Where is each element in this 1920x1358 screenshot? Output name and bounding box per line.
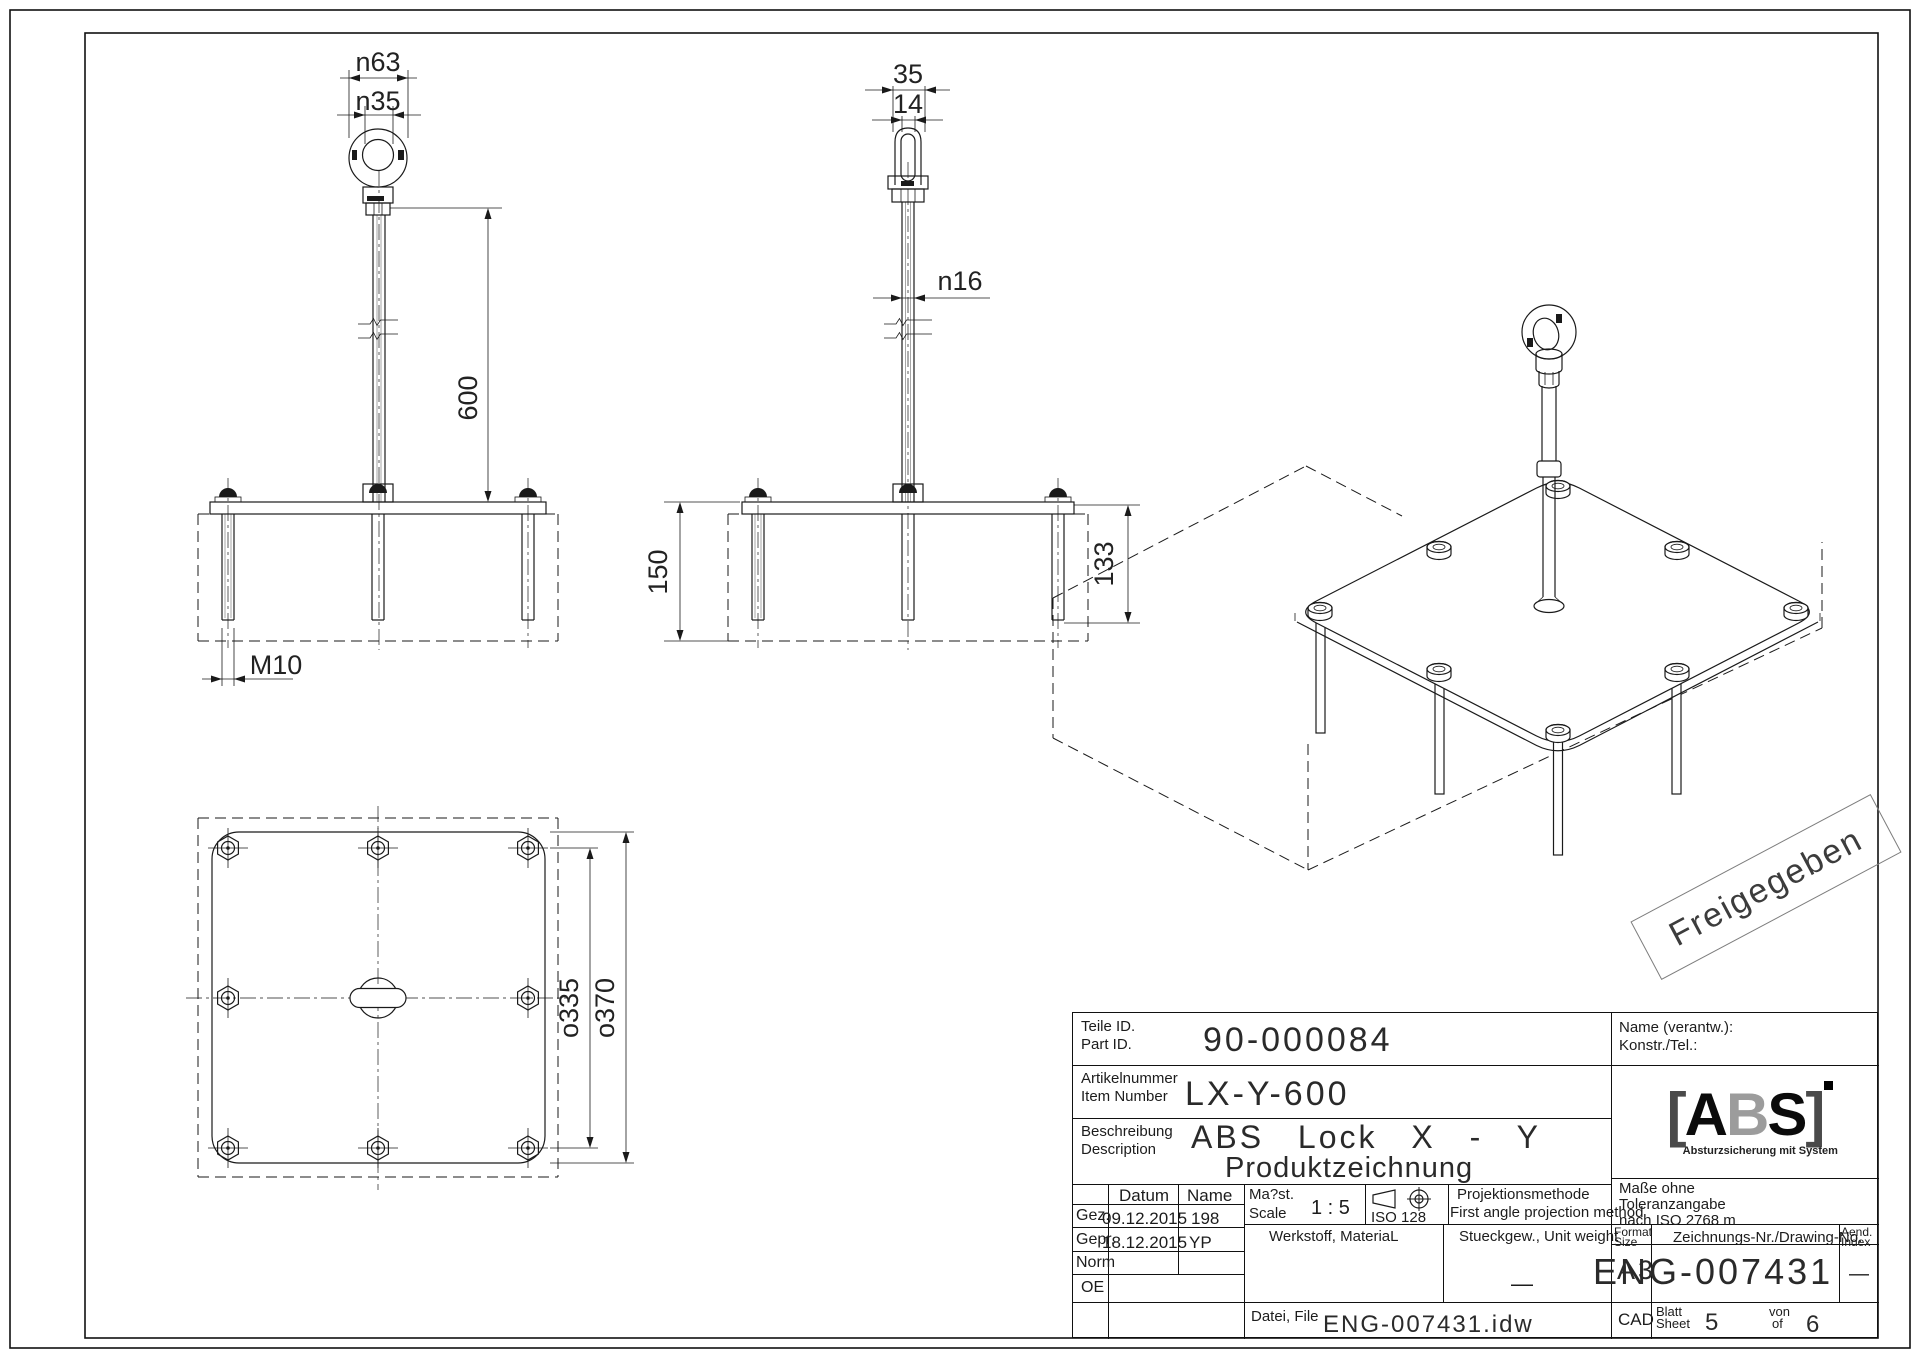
tolerance-line2: Toleranzangabe (1619, 1196, 1726, 1213)
dim-front-thread: M10 (250, 650, 303, 680)
sign-row-gez-date: 09.12.2015 (1102, 1209, 1187, 1229)
sign-row-oe-label: OE (1081, 1279, 1104, 1297)
abs-logo-tagline: Absturzsicherung mit System (1683, 1146, 1838, 1157)
aend-value: — (1849, 1263, 1869, 1286)
weight-value: — (1511, 1271, 1533, 1297)
front-studs (222, 478, 534, 648)
description-label-de: Beschreibung (1081, 1123, 1173, 1140)
projection-label-en: First angle projection method (1450, 1204, 1643, 1221)
sheet-value: 5 (1705, 1309, 1721, 1337)
description-line2: Produktzeichnung (1225, 1152, 1473, 1185)
part-id-value: 90-000084 (1203, 1021, 1393, 1060)
sign-row-gez-name: 198 (1191, 1209, 1219, 1229)
dim-front-rod-length: 600 (453, 375, 483, 420)
iso-label: ISO 128 (1371, 1209, 1426, 1226)
side-view: 35 14 n16 (643, 59, 1140, 650)
isometric-view (1053, 305, 1822, 870)
konstr-label: Konstr./Tel.: (1619, 1037, 1697, 1054)
description-label-en: Description (1081, 1141, 1156, 1158)
abs-logo-letter-b: B (1726, 1081, 1767, 1148)
registered-mark-icon (1824, 1081, 1833, 1090)
file-value: ENG-007431.idw (1323, 1311, 1534, 1339)
material-label: Werkstoff, MateriaL (1269, 1228, 1399, 1245)
projection-label-de: Projektionsmethode (1457, 1186, 1590, 1203)
scale-label-de: Ma?st. (1249, 1186, 1294, 1203)
front-view: n63 n35 600 (198, 47, 558, 686)
abs-logo-letter-s: S (1767, 1081, 1805, 1148)
abs-logo-bracket-right: ] (1805, 1081, 1823, 1148)
drawing-no-value: ENG-007431 (1593, 1251, 1833, 1293)
aend-label-en: Index (1841, 1235, 1870, 1249)
dim-front-inner-diameter: n35 (355, 86, 400, 116)
of-value: 6 (1806, 1311, 1822, 1339)
dim-side-stud-length: 133 (1089, 541, 1119, 586)
dim-side-eye-thickness: 14 (893, 89, 923, 119)
sheet-label-en: Sheet (1656, 1316, 1690, 1331)
cad-label: CAD (1618, 1310, 1654, 1330)
scale-value: 1 : 5 (1311, 1197, 1350, 1220)
item-number-label-en: Item Number (1081, 1088, 1168, 1105)
part-id-label-de: Teile ID. (1081, 1018, 1135, 1035)
of-label-en: of (1772, 1316, 1783, 1331)
weight-label: Stueckgew., Unit weight (1459, 1228, 1618, 1245)
abs-logo-bracket-left: [ (1667, 1081, 1685, 1148)
item-number-value: LX-Y-600 (1185, 1075, 1350, 1114)
format-label-en: Size (1614, 1235, 1637, 1249)
sign-row-gepr-name: YP (1189, 1233, 1212, 1253)
engineering-drawing-sheet: { "page": { "stamp": "Freigegeben" }, "d… (0, 0, 1920, 1358)
plan-view: o335 o370 (186, 806, 634, 1190)
sign-row-gepr-date: 18.12.2015 (1102, 1233, 1187, 1253)
tolerance-line1: Maße ohne (1619, 1180, 1695, 1197)
part-id-label-en: Part ID. (1081, 1036, 1132, 1053)
name-responsible-label: Name (verantw.): (1619, 1019, 1733, 1036)
dim-side-eye-width: 35 (893, 59, 923, 89)
drawing-no-label: Zeichnungs-Nr./Drawing-No. (1673, 1229, 1862, 1246)
file-label: Datei, File (1251, 1308, 1319, 1325)
dim-side-height: 150 (643, 549, 673, 594)
title-block: Teile ID. Part ID. 90-000084 Artikelnumm… (1072, 1012, 1878, 1338)
col-name: Name (1187, 1186, 1232, 1206)
col-datum: Datum (1119, 1186, 1169, 1206)
abs-logo: [ABS] Absturzsicherung mit System (1611, 1065, 1879, 1178)
item-number-label-de: Artikelnummer (1081, 1070, 1178, 1087)
sign-row-norm-label: Norm (1076, 1254, 1115, 1272)
dim-side-rod-diameter: n16 (937, 266, 982, 296)
dim-plan-plate-size: o370 (590, 978, 620, 1038)
description-line1: ABS Lock X - Y (1191, 1119, 1541, 1156)
abs-logo-letter-a: A (1685, 1081, 1726, 1148)
dim-plan-bolt-spacing: o335 (554, 978, 584, 1038)
dim-front-outer-diameter: n63 (355, 47, 400, 77)
scale-label-en: Scale (1249, 1205, 1287, 1222)
